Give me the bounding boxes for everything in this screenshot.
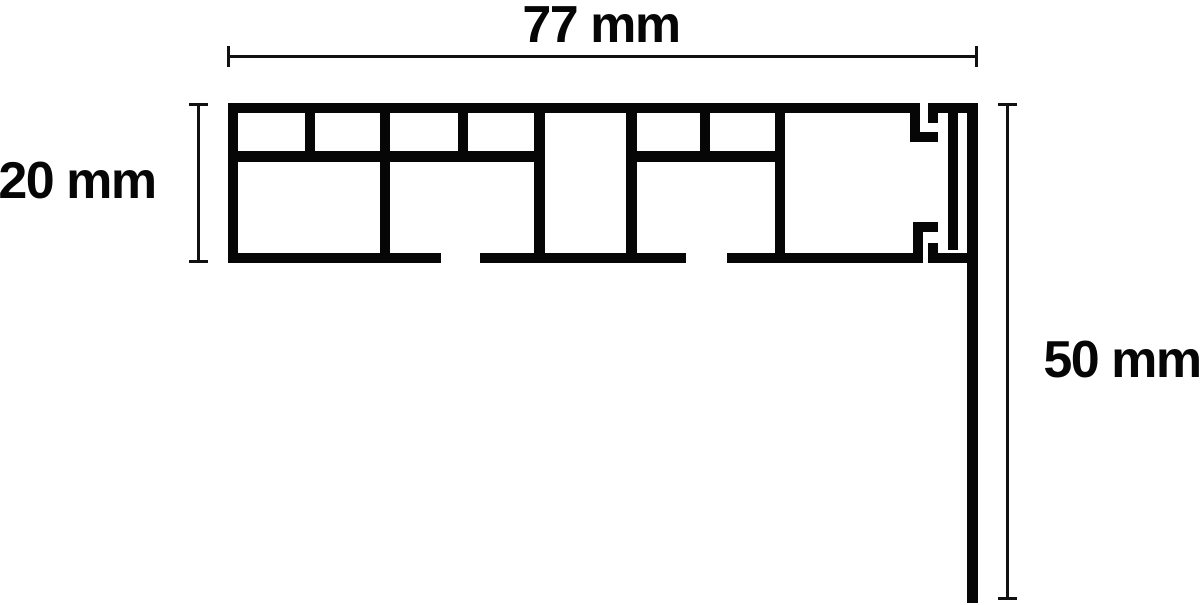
dim-drop-label: 50 mm [1043, 331, 1200, 389]
profile-wall-1 [380, 113, 390, 263]
profile-top-edge [228, 103, 920, 113]
profile-hook-bottom-tab [928, 243, 938, 253]
dim-width-tick-left [227, 46, 230, 67]
profile-vdivider-1 [305, 113, 315, 162]
dim-width-tick-right [975, 46, 978, 67]
profile-bottom-edge-2 [480, 253, 686, 263]
drawing-canvas: 77 mm 20 mm 50 mm [0, 0, 1200, 605]
dim-drop-line [1006, 104, 1009, 600]
profile-left-wall [228, 103, 238, 263]
profile-bottom-edge-1 [228, 253, 441, 263]
dim-width-line [228, 55, 977, 58]
dim-drop-tick-top [998, 103, 1017, 106]
profile-hook-top-tab [928, 113, 938, 123]
dim-height-tick-bottom [189, 260, 208, 263]
profile-hook-bottom-arm [913, 222, 938, 232]
profile-divider-mid [637, 151, 785, 162]
profile-channel-inner-bar [948, 113, 958, 250]
profile-right-wall-drop-leg [967, 103, 978, 603]
profile-vdivider-3 [700, 113, 710, 162]
profile-wall-2 [775, 113, 785, 263]
dim-height-tick-top [189, 103, 208, 106]
dim-drop-tick-bottom [998, 597, 1017, 600]
profile-vdivider-2 [458, 113, 468, 162]
profile-center-cell-right-wall [626, 113, 637, 263]
profile-hook-top-arm [910, 132, 938, 142]
dim-height-label: 20 mm [0, 152, 156, 210]
dim-width-label: 77 mm [522, 0, 679, 54]
profile-bottom-edge-3 [727, 253, 923, 263]
profile-cross-section-diagram: 77 mm 20 mm 50 mm [0, 0, 1200, 605]
dim-height-line [197, 104, 200, 263]
profile-center-cell-left-wall [534, 113, 545, 263]
